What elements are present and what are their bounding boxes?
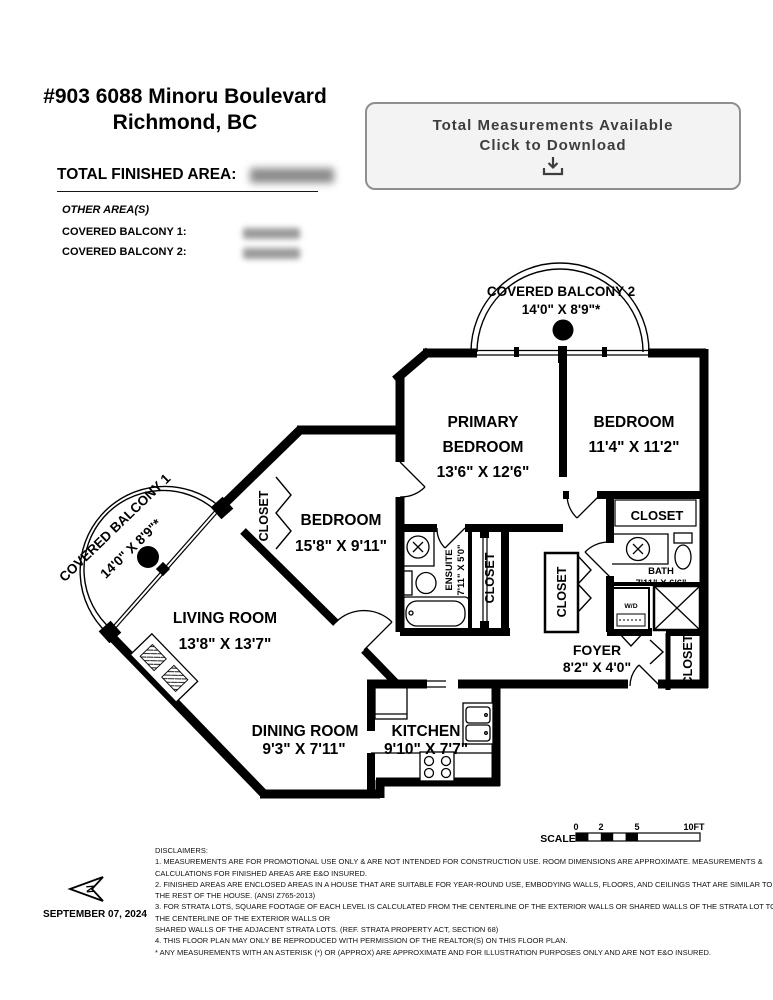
ensuite-name: ENSUITE xyxy=(444,549,455,590)
foyer-dims: 8'2" X 4'0" xyxy=(563,659,631,675)
disclaimer-line: 2. FINISHED AREAS ARE ENCLOSED AREAS IN … xyxy=(155,879,745,890)
ensuite-dims: 7'11" X 5'0" xyxy=(456,544,467,595)
bedroom-right-name: BEDROOM xyxy=(594,414,675,431)
scale-tick-10: 10FT xyxy=(683,822,705,832)
bedroom-left-dims: 15'8" X 9'11" xyxy=(295,538,387,555)
disclaimer-line: THE CENTERLINE OF THE EXTERIOR WALLS OR xyxy=(155,913,745,924)
closet-foyer: CLOSET xyxy=(681,634,695,685)
living-room-name: LIVING ROOM xyxy=(173,610,277,627)
plan-date: SEPTEMBER 07, 2024 xyxy=(35,909,155,920)
disclaimer-line: 4. THIS FLOOR PLAN MAY ONLY BE REPRODUCE… xyxy=(155,935,745,946)
bath-fixtures xyxy=(612,533,692,569)
disclaimer-line: CALCULATIONS FOR FINISHED AREAS ARE E&O … xyxy=(155,868,745,879)
disclaimer-line: * ANY MEASUREMENTS WITH AN ASTERISK (*) … xyxy=(155,947,745,958)
shaft-box xyxy=(654,586,700,630)
scale-tick-0: 0 xyxy=(573,822,578,832)
primary-bedroom-name-2: BEDROOM xyxy=(443,439,524,456)
north-arrow-icon: N xyxy=(70,877,103,901)
closet-bedroom-right: CLOSET xyxy=(631,508,684,523)
closet-bedroom-left: CLOSET xyxy=(257,490,271,541)
scale-label: SCALE xyxy=(540,833,576,845)
ensuite-toilet xyxy=(416,573,436,594)
wd-label: W/D xyxy=(624,603,637,610)
dining-room-name: DINING ROOM xyxy=(252,723,359,740)
primary-bedroom-dims: 13'6" X 12'6" xyxy=(437,464,530,481)
closet-hall: CLOSET xyxy=(555,566,569,617)
scale-tick-2: 2 xyxy=(598,822,603,832)
disclaimer-line: DISCLAIMERS: xyxy=(155,845,745,856)
kitchen-dims: 9'10" X 7'7" xyxy=(384,741,468,758)
balcony-2-dims: 14'0" X 8'9"* xyxy=(522,302,601,317)
disclaimer-line: 1. MEASUREMENTS ARE FOR PROMOTIONAL USE … xyxy=(155,856,745,867)
closet-ensuite-side: CLOSET xyxy=(483,552,497,603)
disclaimer-line: SHARED WALLS OF THE ADJACENT STRATA LOTS… xyxy=(155,924,745,935)
foyer-name: FOYER xyxy=(573,642,621,658)
scale-bar: SCALE 0 2 5 10FT xyxy=(540,822,705,845)
bath-dims: 7'11" X 6'6" xyxy=(635,578,686,589)
balcony-2-column xyxy=(553,320,574,341)
bedroom-left-name: BEDROOM xyxy=(301,512,382,529)
disclaimer-line: 3. FOR STRATA LOTS, SQUARE FOOTAGE OF EA… xyxy=(155,901,745,912)
primary-bedroom-name-1: PRIMARY xyxy=(448,414,520,431)
kitchen-name: KITCHEN xyxy=(392,723,461,740)
disclaimers: DISCLAIMERS: 1. MEASUREMENTS ARE FOR PRO… xyxy=(155,845,745,958)
balcony-2-name: COVERED BALCONY 2 xyxy=(487,284,635,299)
bedroom-right-dims: 11'4" X 11'2" xyxy=(588,439,679,456)
living-room-dims: 13'8" X 13'7" xyxy=(179,636,272,653)
disclaimer-line: THE REST OF THE HOUSE. (ANSI Z765-2013) xyxy=(155,890,745,901)
bath-name: BATH xyxy=(648,566,674,577)
north-label: N xyxy=(85,884,98,893)
bath-toilet xyxy=(675,545,691,569)
dining-room-dims: 9'3" X 7'11" xyxy=(262,741,345,758)
scale-tick-5: 5 xyxy=(634,822,639,832)
